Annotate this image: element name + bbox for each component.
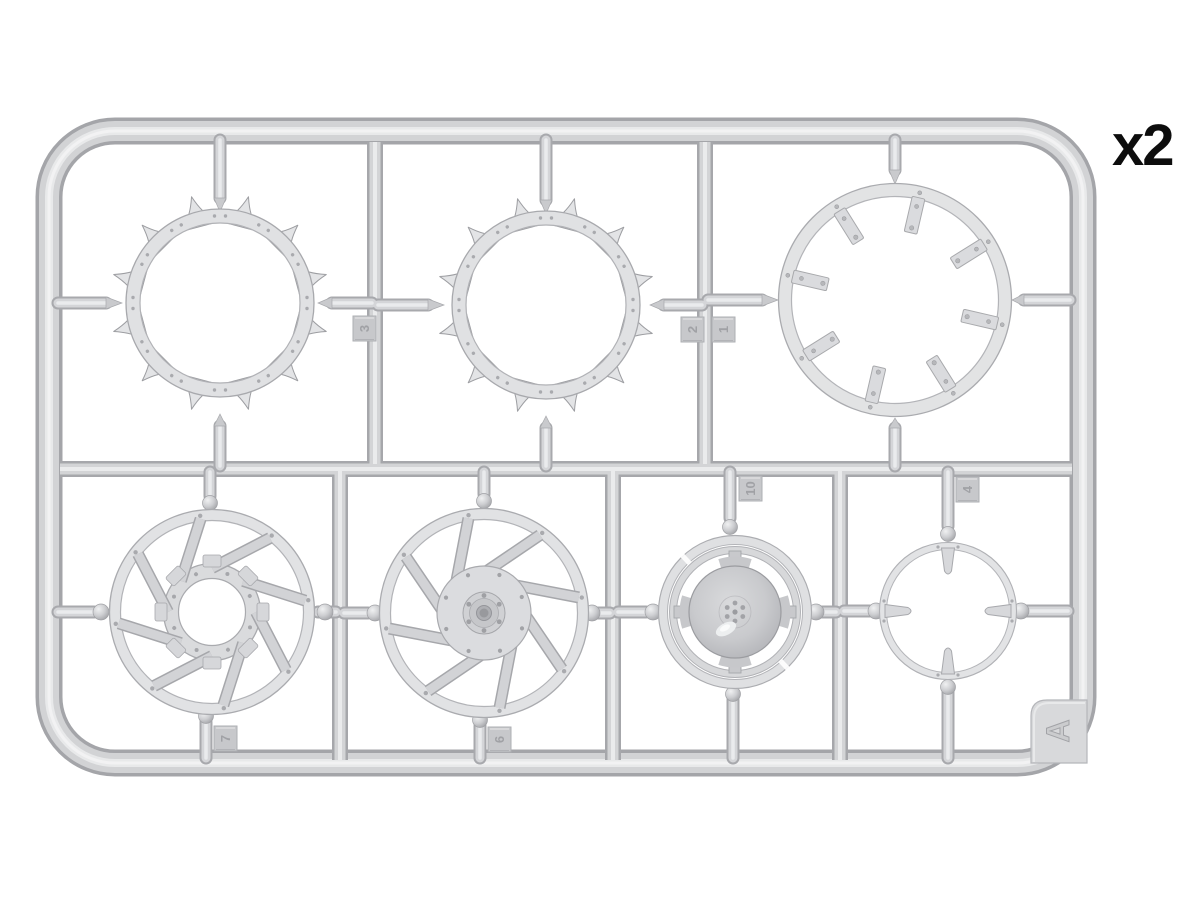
part-spoked-wheel-open-hub (110, 510, 315, 715)
part-stub-ring (880, 543, 1017, 680)
part-number-7: 7 (218, 735, 233, 742)
part-number-tag-6: 6 (488, 727, 511, 752)
sprue-letter: A (1040, 719, 1076, 742)
part-number-6: 6 (492, 736, 507, 743)
part-number-tag-2: 2 (681, 317, 704, 342)
part-number-3: 3 (357, 325, 372, 332)
quantity-label: x2 (1112, 113, 1173, 178)
part-number-4: 4 (960, 485, 975, 493)
part-number-10: 10 (743, 481, 758, 495)
part-number-tag-4: 4 (956, 477, 979, 502)
part-number-tag-7: 7 (214, 726, 237, 751)
sprue-photo: 3 2 1 10 4 7 6 A x2 (0, 0, 1200, 900)
part-spoked-wheel-hub-cap (380, 509, 589, 718)
photo-canvas: 3 2 1 10 4 7 6 A x2 (0, 0, 1200, 900)
part-number-2: 2 (685, 326, 700, 333)
part-idler-ring (779, 184, 1012, 417)
part-sprocket-ring-2 (435, 194, 657, 416)
part-domed-hub-wheel (659, 536, 812, 689)
part-number-1: 1 (716, 326, 731, 333)
sprue-letter-tab: A (1031, 700, 1087, 763)
part-sprocket-ring-1 (109, 192, 331, 414)
part-number-tag-10: 10 (739, 476, 762, 501)
part-number-tag-3: 3 (353, 316, 376, 341)
part-number-tag-1: 1 (712, 317, 735, 342)
